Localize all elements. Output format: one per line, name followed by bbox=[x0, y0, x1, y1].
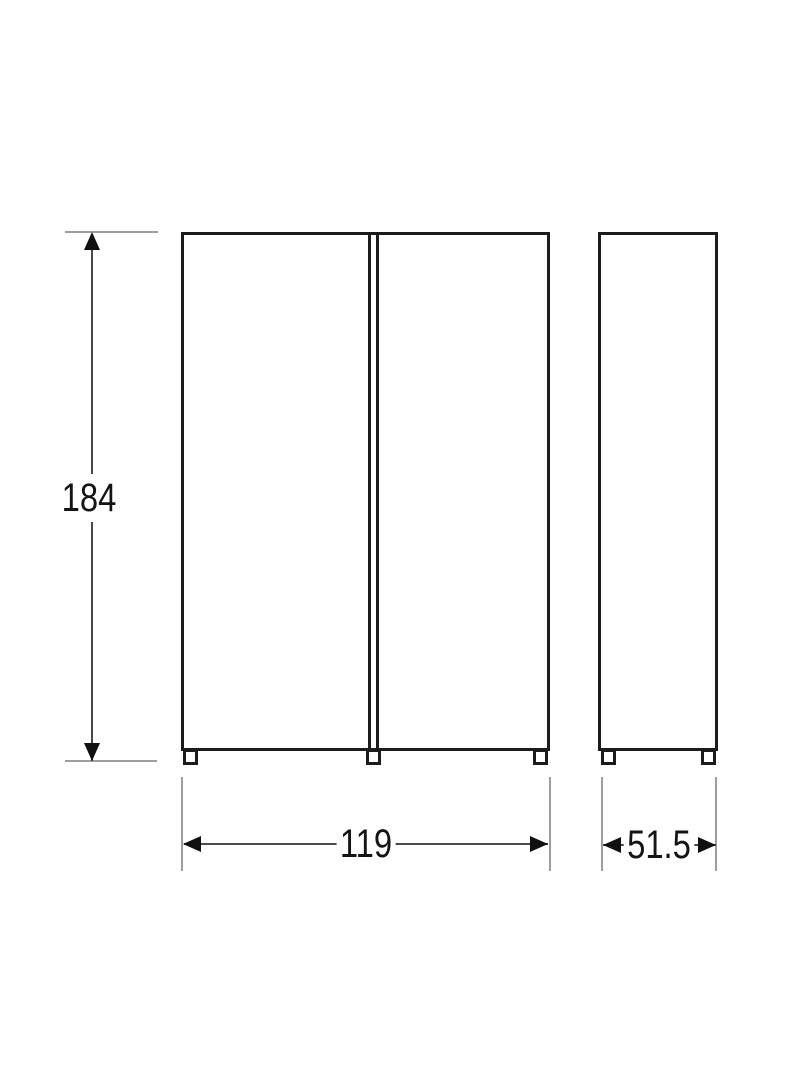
depth-extension-line-right bbox=[715, 777, 717, 871]
foot-side-front bbox=[601, 749, 616, 765]
dim-arrowhead-down-icon bbox=[84, 743, 100, 761]
dim-arrowhead-right-icon bbox=[530, 836, 548, 852]
height-extension-line-bottom bbox=[65, 760, 157, 762]
height-dimension-label: 184 bbox=[58, 474, 119, 522]
side-view-outline bbox=[598, 232, 718, 751]
height-extension-line-top bbox=[65, 231, 158, 233]
width-extension-line-right bbox=[549, 777, 551, 871]
dim-arrowhead-left-icon bbox=[603, 837, 621, 853]
width-extension-line-left bbox=[181, 777, 183, 871]
foot-front-right bbox=[533, 749, 548, 765]
door-gap-line-left bbox=[368, 235, 371, 748]
foot-front-center bbox=[366, 749, 381, 765]
foot-front-left bbox=[183, 749, 198, 765]
foot-side-back bbox=[701, 749, 716, 765]
depth-dimension-label: 51.5 bbox=[624, 821, 694, 869]
width-dimension-label: 119 bbox=[337, 820, 396, 868]
front-view-outline bbox=[181, 232, 550, 751]
dim-arrowhead-right-icon bbox=[698, 837, 716, 853]
dim-arrowhead-up-icon bbox=[84, 232, 100, 250]
depth-extension-line-left bbox=[601, 777, 603, 871]
dimension-drawing-canvas: 184 119 51.5 bbox=[0, 0, 800, 1081]
dim-arrowhead-left-icon bbox=[183, 836, 201, 852]
door-gap-line-right bbox=[376, 235, 379, 748]
